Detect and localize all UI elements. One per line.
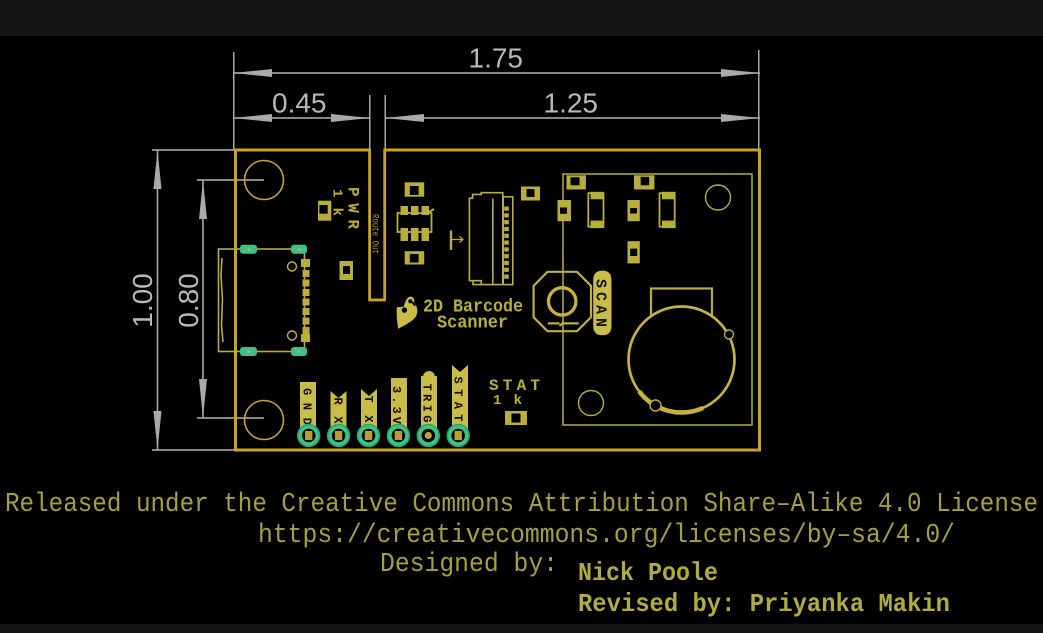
svg-text:Nick Poole: Nick Poole — [578, 558, 718, 588]
svg-text:1.00: 1.00 — [127, 273, 158, 328]
svg-text:https://creativecommons.org/li: https://creativecommons.org/licenses/by–… — [258, 521, 955, 551]
svg-text:Route Out: Route Out — [369, 214, 380, 254]
svg-text:1.25: 1.25 — [544, 88, 599, 119]
svg-text:1 k: 1 k — [493, 393, 522, 409]
svg-text:1.75: 1.75 — [469, 43, 524, 74]
svg-text:Designed by:: Designed by: — [380, 550, 558, 580]
svg-text:GND: GND — [300, 388, 314, 425]
svg-text:Released under the Creative Co: Released under the Creative Commons Attr… — [5, 490, 1038, 520]
svg-text:Scanner: Scanner — [437, 313, 508, 334]
svg-text:0.80: 0.80 — [173, 273, 204, 328]
svg-text:Revised by: Priyanka Makin: Revised by: Priyanka Makin — [578, 589, 950, 619]
svg-text:PWR: PWR — [344, 187, 362, 229]
svg-text:0.45: 0.45 — [272, 88, 327, 119]
